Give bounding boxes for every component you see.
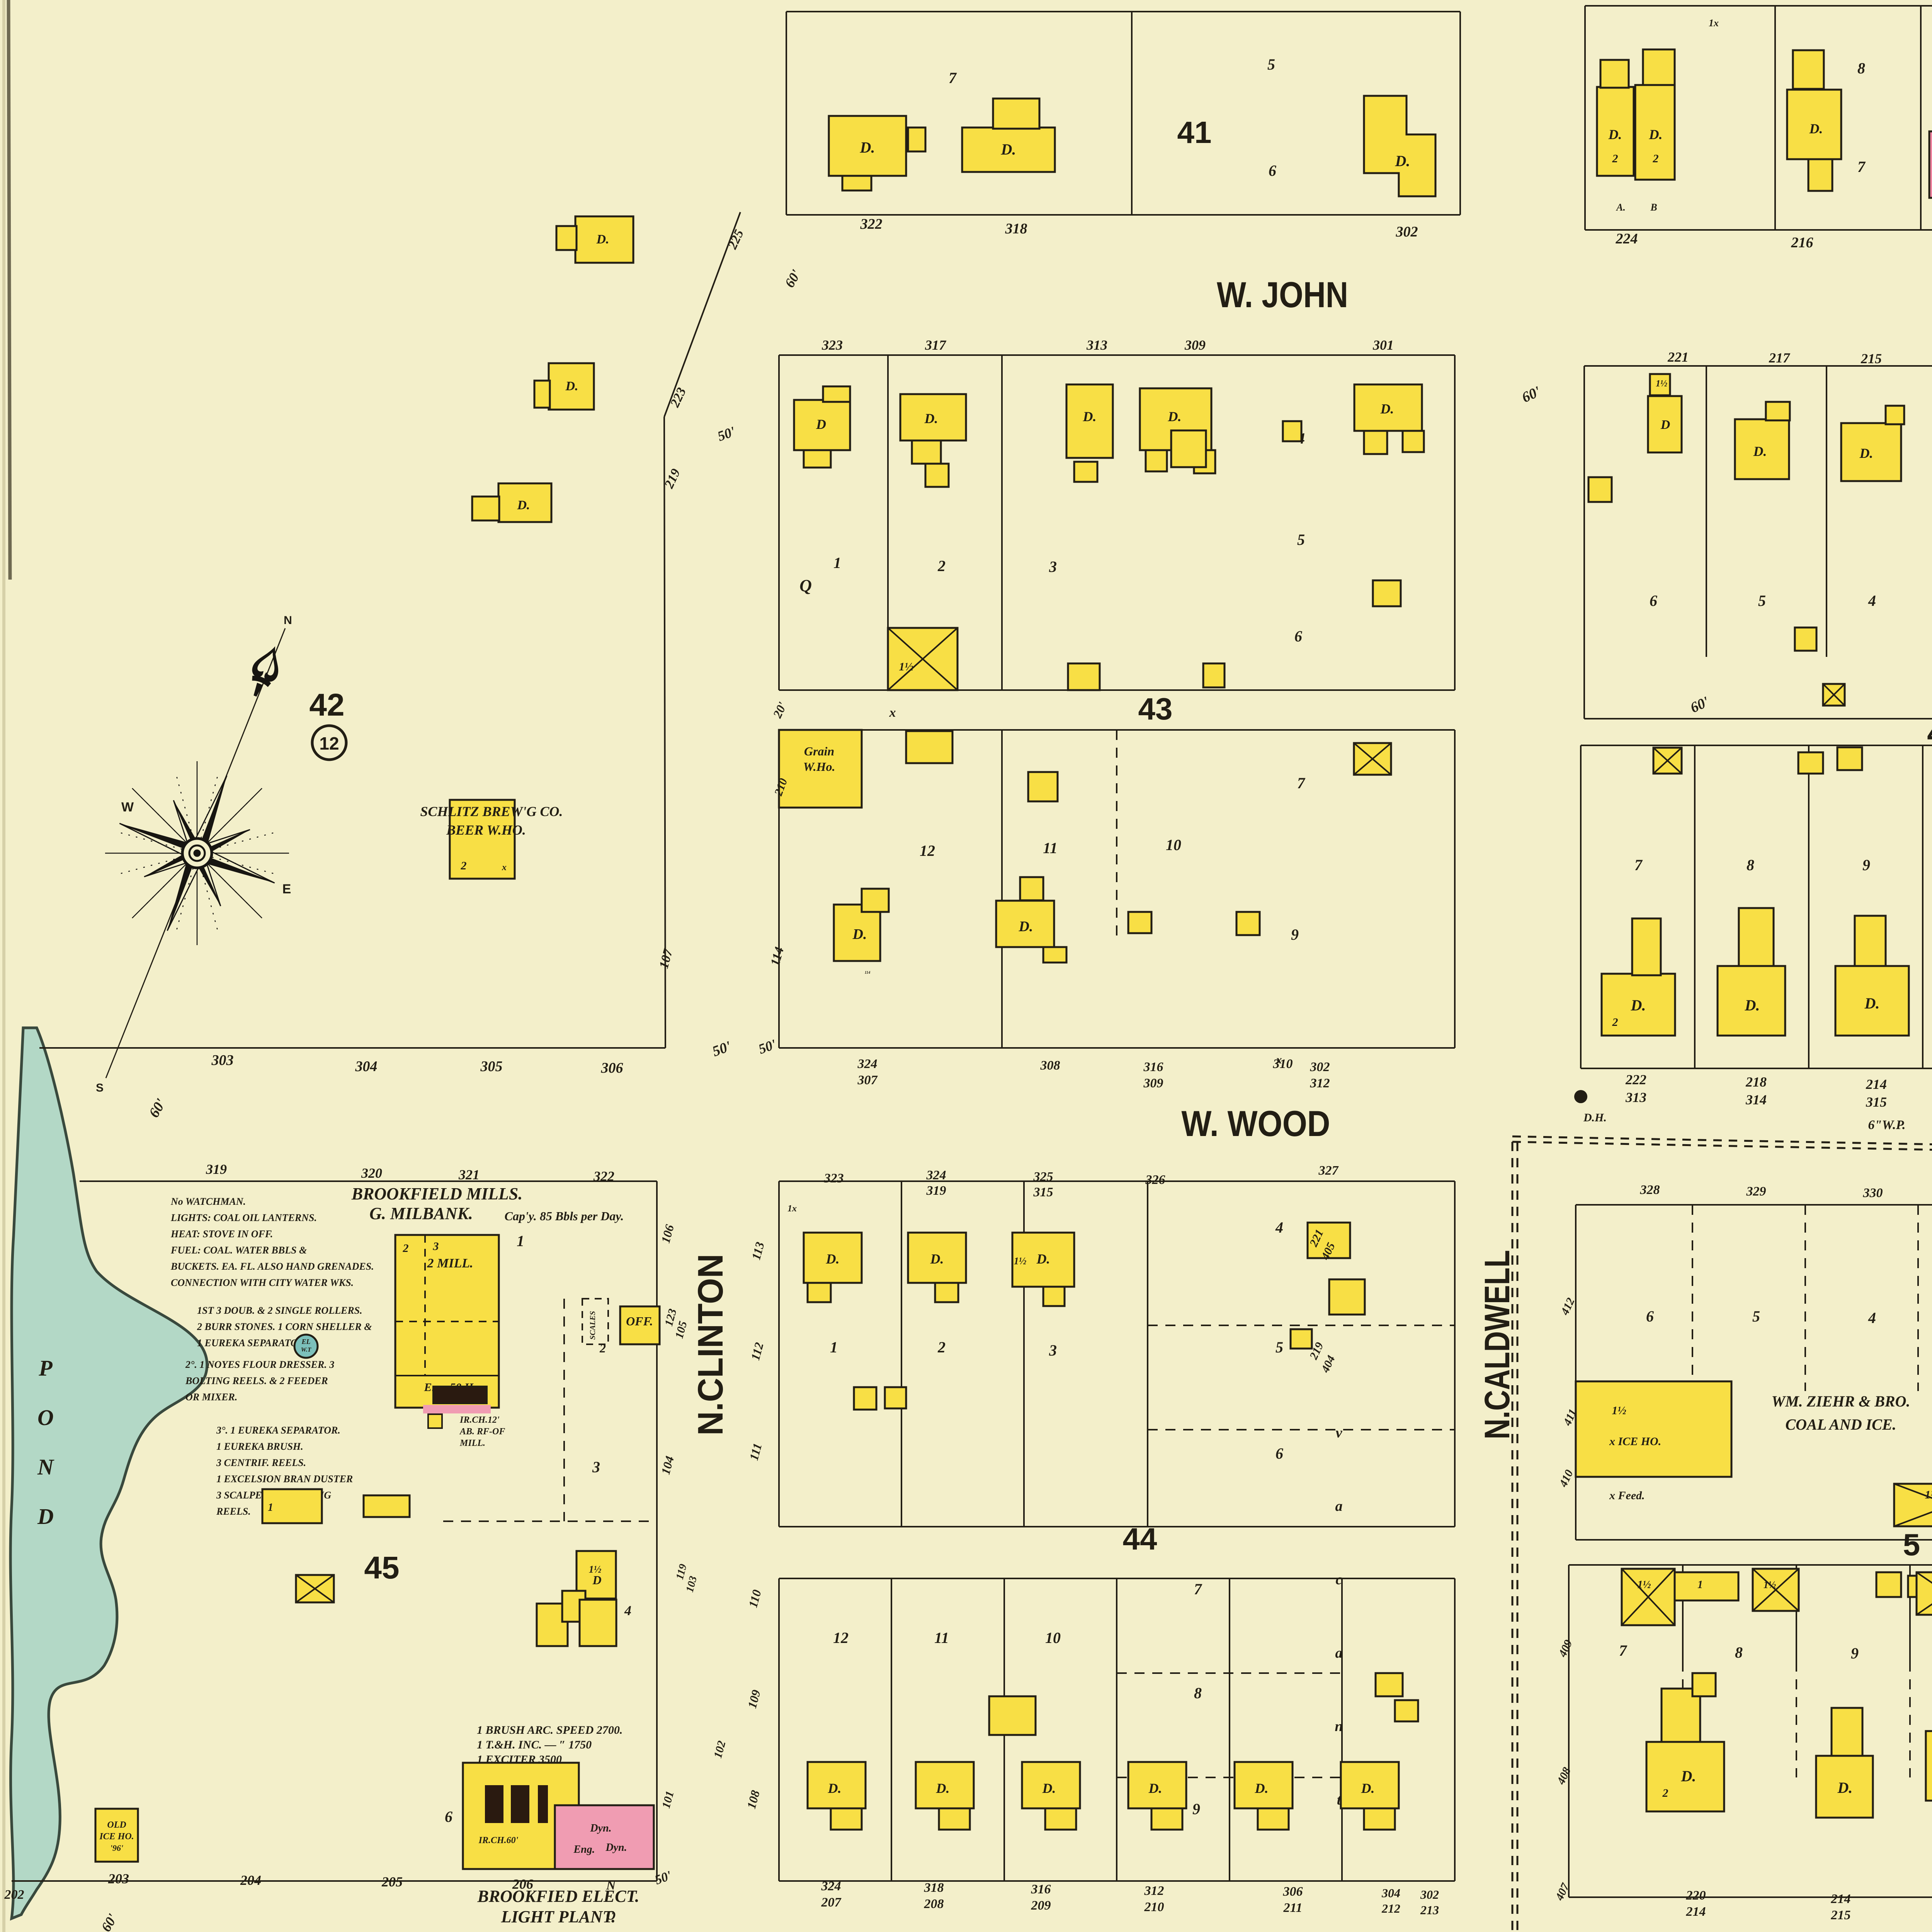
svg-text:a: a <box>1335 1645 1343 1661</box>
svg-text:1½: 1½ <box>1638 1579 1651 1591</box>
svg-text:E: E <box>282 882 291 896</box>
svg-text:5: 5 <box>1276 1338 1283 1356</box>
svg-text:N: N <box>37 1454 54 1480</box>
svg-text:D.: D. <box>930 1251 944 1267</box>
svg-text:7: 7 <box>949 69 957 87</box>
svg-text:D.: D. <box>860 139 875 156</box>
svg-text:7: 7 <box>1194 1580 1202 1598</box>
svg-text:207: 207 <box>821 1895 842 1910</box>
svg-text:1: 1 <box>268 1502 273 1514</box>
svg-text:6: 6 <box>445 1808 452 1825</box>
svg-text:6: 6 <box>1276 1445 1283 1462</box>
svg-text:A.: A. <box>1616 202 1626 213</box>
svg-text:SCALES: SCALES <box>588 1311 597 1340</box>
svg-text:205: 205 <box>381 1874 403 1889</box>
svg-text:6: 6 <box>1294 628 1302 645</box>
svg-text:N: N <box>606 1878 616 1893</box>
svg-text:v: v <box>1336 1425 1343 1441</box>
svg-text:D.: D. <box>1380 401 1394 417</box>
svg-text:No WATCHMAN.: No WATCHMAN. <box>170 1196 246 1207</box>
svg-text:COAL AND ICE.: COAL AND ICE. <box>1785 1416 1896 1433</box>
svg-text:x Feed.: x Feed. <box>1609 1489 1645 1502</box>
svg-text:MILL.: MILL. <box>459 1438 485 1448</box>
svg-text:1 EUREKA SEPARATOR.: 1 EUREKA SEPARATOR. <box>197 1337 307 1349</box>
svg-text:313: 313 <box>1625 1090 1646 1105</box>
svg-text:2: 2 <box>461 859 467 872</box>
svg-text:W. WOOD: W. WOOD <box>1182 1103 1330 1144</box>
svg-text:3: 3 <box>1049 1342 1057 1359</box>
svg-text:2: 2 <box>403 1242 409 1255</box>
svg-text:4: 4 <box>624 1603 631 1618</box>
svg-text:6: 6 <box>1646 1308 1654 1325</box>
svg-text:211: 211 <box>1283 1901 1302 1915</box>
svg-text:322: 322 <box>593 1168 614 1184</box>
svg-text:42: 42 <box>309 687 344 723</box>
svg-text:LIGHT PLANT.: LIGHT PLANT. <box>501 1907 616 1926</box>
svg-text:12: 12 <box>920 842 935 859</box>
svg-text:325: 325 <box>1033 1170 1053 1184</box>
svg-text:B: B <box>1650 202 1657 213</box>
svg-text:8: 8 <box>1857 60 1865 77</box>
svg-text:221: 221 <box>1667 349 1689 365</box>
svg-text:IR.CH.12': IR.CH.12' <box>459 1415 500 1425</box>
svg-text:9: 9 <box>1851 1645 1859 1662</box>
svg-text:218: 218 <box>1745 1074 1767 1090</box>
svg-text:OFF.: OFF. <box>626 1314 653 1328</box>
svg-text:D.: D. <box>1681 1767 1696 1785</box>
svg-text:BUCKETS. EA. FL. ALSO HAND GRE: BUCKETS. EA. FL. ALSO HAND GRENADES. <box>170 1261 374 1272</box>
svg-text:214: 214 <box>1686 1905 1706 1919</box>
svg-text:2: 2 <box>1612 1016 1618 1029</box>
svg-text:D.: D. <box>1649 127 1663 142</box>
svg-text:316: 316 <box>1031 1882 1051 1896</box>
svg-text:319: 319 <box>206 1162 227 1177</box>
svg-text:3: 3 <box>433 1240 439 1253</box>
svg-text:313: 313 <box>1086 337 1107 353</box>
svg-text:10: 10 <box>1045 1629 1061 1646</box>
svg-text:214: 214 <box>1866 1077 1887 1092</box>
svg-text:LIGHTS: COAL OIL LANTERNS.: LIGHTS: COAL OIL LANTERNS. <box>170 1212 317 1223</box>
svg-text:308: 308 <box>1040 1058 1060 1073</box>
svg-text:302: 302 <box>1396 224 1418 240</box>
svg-text:5: 5 <box>1297 531 1305 548</box>
svg-text:D: D <box>592 1573 601 1587</box>
svg-text:1½: 1½ <box>1764 1579 1776 1590</box>
svg-text:D.: D. <box>1631 997 1646 1014</box>
svg-text:306: 306 <box>601 1060 623 1076</box>
svg-text:IR.CH.60': IR.CH.60' <box>478 1835 519 1845</box>
svg-text:302: 302 <box>1420 1888 1439 1901</box>
svg-text:D.: D. <box>828 1781 842 1796</box>
svg-text:1½: 1½ <box>1612 1404 1626 1417</box>
svg-text:c: c <box>1336 1571 1342 1588</box>
svg-text:D: D <box>37 1504 54 1529</box>
svg-text:D.H.: D.H. <box>1583 1111 1607 1124</box>
svg-text:1½: 1½ <box>1656 379 1667 389</box>
svg-text:324: 324 <box>857 1057 878 1071</box>
svg-text:Q: Q <box>799 576 812 595</box>
svg-text:S: S <box>96 1082 104 1094</box>
svg-text:D.: D. <box>1148 1781 1162 1796</box>
svg-text:203: 203 <box>108 1871 129 1886</box>
svg-text:D.: D. <box>1361 1781 1375 1796</box>
svg-text:317: 317 <box>925 337 947 353</box>
svg-text:D.: D. <box>517 498 530 512</box>
svg-text:D.: D. <box>924 411 938 426</box>
svg-text:215: 215 <box>1831 1908 1851 1922</box>
svg-text:3°. 1 EUREKA SEPARATOR.: 3°. 1 EUREKA SEPARATOR. <box>216 1425 340 1436</box>
svg-text:t: t <box>1337 1792 1342 1808</box>
svg-text:9: 9 <box>1291 926 1299 943</box>
svg-text:D: D <box>1660 418 1670 432</box>
svg-text:G. MILBANK.: G. MILBANK. <box>369 1204 473 1223</box>
svg-text:302: 302 <box>1310 1060 1330 1074</box>
svg-text:7: 7 <box>1634 856 1643 874</box>
svg-text:SCHLITZ BREW'G CO.: SCHLITZ BREW'G CO. <box>420 804 563 819</box>
svg-text:307: 307 <box>857 1073 878 1087</box>
svg-text:324: 324 <box>926 1168 946 1182</box>
svg-text:D.: D. <box>1859 446 1873 461</box>
svg-text:3: 3 <box>1049 558 1057 575</box>
svg-text:321: 321 <box>458 1167 480 1182</box>
svg-text:304: 304 <box>1381 1886 1400 1900</box>
svg-text:D.: D. <box>1753 444 1767 459</box>
svg-text:328: 328 <box>1640 1183 1660 1197</box>
svg-text:305: 305 <box>480 1058 503 1075</box>
svg-text:WM. ZIEHR & BRO.: WM. ZIEHR & BRO. <box>1772 1393 1910 1410</box>
svg-text:D.: D. <box>1837 1779 1853 1796</box>
svg-text:114: 114 <box>865 971 870 975</box>
svg-text:312: 312 <box>1310 1076 1330 1090</box>
svg-text:D: D <box>816 417 826 432</box>
svg-text:D.: D. <box>565 379 578 393</box>
svg-text:x: x <box>889 706 896 720</box>
svg-text:330: 330 <box>1863 1186 1883 1200</box>
svg-text:2°. 1 NOYES FLOUR DRESSER. 3: 2°. 1 NOYES FLOUR DRESSER. 3 <box>185 1359 334 1370</box>
svg-text:D.: D. <box>1255 1781 1269 1796</box>
svg-text:41: 41 <box>1177 115 1212 150</box>
svg-text:1 BRUSH ARC. SPEED 2700.: 1 BRUSH ARC. SPEED 2700. <box>477 1724 622 1736</box>
svg-text:214: 214 <box>1831 1892 1851 1906</box>
svg-text:5: 5 <box>1267 56 1275 73</box>
svg-text:1: 1 <box>1697 1579 1703 1591</box>
svg-text:8: 8 <box>1747 856 1754 874</box>
svg-text:7: 7 <box>1297 774 1306 792</box>
svg-text:322: 322 <box>860 216 883 232</box>
svg-text:329: 329 <box>1746 1184 1766 1199</box>
svg-text:327: 327 <box>1318 1163 1339 1178</box>
svg-text:2 BURR STONES. 1 CORN SHELLER: 2 BURR STONES. 1 CORN SHELLER & <box>197 1321 372 1332</box>
svg-text:212: 212 <box>1381 1901 1400 1915</box>
svg-text:206: 206 <box>512 1876 533 1892</box>
svg-text:309: 309 <box>1184 337 1206 353</box>
svg-text:314: 314 <box>1745 1092 1767 1107</box>
svg-text:6: 6 <box>1650 592 1657 609</box>
svg-text:5: 5 <box>1758 592 1766 609</box>
svg-text:323: 323 <box>824 1171 844 1185</box>
svg-text:W.Ho.: W.Ho. <box>803 760 835 774</box>
svg-text:215: 215 <box>1861 351 1882 366</box>
svg-text:224: 224 <box>1616 231 1638 247</box>
svg-text:1x: 1x <box>1709 17 1719 29</box>
svg-text:D.: D. <box>1745 997 1760 1014</box>
svg-text:312: 312 <box>1144 1884 1164 1898</box>
svg-text:ICE HO.: ICE HO. <box>99 1832 134 1842</box>
svg-text:1½: 1½ <box>1014 1255 1027 1267</box>
svg-text:304: 304 <box>355 1058 378 1075</box>
svg-text:4: 4 <box>1868 1309 1876 1327</box>
svg-text:D.: D. <box>596 232 609 247</box>
svg-text:318: 318 <box>924 1881 944 1895</box>
svg-text:5: 5 <box>1752 1308 1760 1325</box>
svg-text:303: 303 <box>211 1052 234 1068</box>
svg-text:Grain: Grain <box>804 744 834 758</box>
svg-text:9: 9 <box>1862 856 1870 874</box>
svg-text:n: n <box>1335 1718 1343 1735</box>
svg-text:324: 324 <box>821 1879 841 1893</box>
svg-text:W.T: W.T <box>301 1347 312 1353</box>
svg-text:2: 2 <box>1653 152 1659 165</box>
svg-text:BOLTING REELS. & 2 FEEDER: BOLTING REELS. & 2 FEEDER <box>185 1375 328 1386</box>
svg-text:2: 2 <box>599 1341 606 1355</box>
svg-text:202: 202 <box>4 1888 24 1902</box>
svg-text:REELS.: REELS. <box>216 1506 251 1517</box>
svg-text:8: 8 <box>1735 1644 1743 1661</box>
svg-text:12: 12 <box>833 1629 849 1646</box>
svg-text:N.CLINTON: N.CLINTON <box>691 1254 730 1435</box>
svg-text:301: 301 <box>1372 337 1394 353</box>
svg-text:318: 318 <box>1005 221 1027 237</box>
svg-text:Eng.: Eng. <box>573 1844 595 1855</box>
svg-text:2: 2 <box>937 1338 946 1356</box>
svg-text:315: 315 <box>1033 1185 1053 1199</box>
svg-text:W. BROOK: W. BROOK <box>1151 1928 1317 1932</box>
svg-text:FUEL: COAL. WATER BBLS &: FUEL: COAL. WATER BBLS & <box>170 1245 307 1256</box>
svg-text:1½: 1½ <box>899 660 913 673</box>
svg-text:2: 2 <box>937 557 946 575</box>
svg-text:1 EXCITER 3500: 1 EXCITER 3500 <box>477 1753 562 1766</box>
svg-text:2: 2 <box>1662 1787 1668 1799</box>
svg-text:N: N <box>284 614 292 627</box>
svg-text:8: 8 <box>1194 1684 1202 1702</box>
svg-text:309: 309 <box>1143 1076 1163 1090</box>
svg-text:213: 213 <box>1420 1903 1439 1917</box>
svg-text:204: 204 <box>240 1872 261 1888</box>
svg-text:12: 12 <box>319 733 339 753</box>
svg-text:310: 310 <box>1273 1057 1293 1071</box>
svg-text:D.: D. <box>1001 141 1016 158</box>
svg-text:9: 9 <box>1192 1800 1200 1818</box>
svg-text:1ST 3 DOUB. & 2 SINGLE ROLLERS: 1ST 3 DOUB. & 2 SINGLE ROLLERS. <box>197 1305 362 1316</box>
svg-text:Dyn.: Dyn. <box>590 1822 611 1834</box>
svg-text:x ICE HO.: x ICE HO. <box>1609 1435 1661 1448</box>
svg-text:43: 43 <box>1138 692 1173 726</box>
svg-text:x: x <box>1276 1053 1282 1066</box>
svg-text:6"W.P.: 6"W.P. <box>1868 1118 1906 1132</box>
svg-text:220: 220 <box>1686 1888 1706 1903</box>
svg-text:BEER W.HO.: BEER W.HO. <box>446 822 526 838</box>
svg-text:D.: D. <box>826 1251 840 1267</box>
svg-text:D.: D. <box>936 1781 950 1796</box>
svg-text:Dyn.: Dyn. <box>605 1842 627 1854</box>
svg-text:11: 11 <box>1043 839 1058 857</box>
svg-text:1 EXCELSION BRAN DUSTER: 1 EXCELSION BRAN DUSTER <box>216 1473 353 1485</box>
svg-text:AB. RF-OF: AB. RF-OF <box>459 1427 505 1437</box>
svg-text:D.: D. <box>1168 409 1182 424</box>
svg-text:217: 217 <box>1769 350 1791 366</box>
svg-text:4: 4 <box>1868 592 1876 609</box>
svg-text:1: 1 <box>833 554 841 571</box>
svg-text:7: 7 <box>1857 158 1866 175</box>
svg-text:D.: D. <box>1809 121 1823 136</box>
svg-text:BROOKFIELD MILLS.: BROOKFIELD MILLS. <box>351 1184 523 1203</box>
svg-text:44: 44 <box>1123 1522 1157 1556</box>
svg-text:319: 319 <box>926 1184 946 1198</box>
svg-text:O: O <box>606 1908 616 1923</box>
svg-text:D.: D. <box>1019 918 1033 935</box>
svg-text:3: 3 <box>592 1458 600 1476</box>
svg-text:209: 209 <box>1031 1898 1051 1913</box>
svg-text:a: a <box>1335 1498 1343 1514</box>
svg-text:210: 210 <box>1144 1900 1164 1914</box>
svg-text:'96': '96' <box>110 1843 123 1853</box>
svg-text:Cap'y. 85 Bbls per Day.: Cap'y. 85 Bbls per Day. <box>505 1209 624 1223</box>
svg-text:10: 10 <box>1166 836 1181 854</box>
svg-text:7: 7 <box>1619 1642 1628 1659</box>
svg-text:1: 1 <box>830 1338 838 1356</box>
svg-text:D.: D. <box>1864 995 1880 1012</box>
svg-text:OLD: OLD <box>107 1820 126 1830</box>
svg-text:D.: D. <box>1608 127 1622 142</box>
svg-text:1x: 1x <box>787 1204 797 1214</box>
svg-text:O: O <box>37 1405 54 1430</box>
svg-text:W: W <box>121 800 134 815</box>
svg-text:323: 323 <box>821 337 843 353</box>
svg-text:1½: 1½ <box>1925 1488 1932 1501</box>
svg-text:EL: EL <box>301 1338 310 1345</box>
svg-text:3 CENTRIF. REELS.: 3 CENTRIF. REELS. <box>216 1457 306 1468</box>
svg-text:316: 316 <box>1143 1060 1163 1074</box>
svg-text:222: 222 <box>1625 1072 1646 1087</box>
svg-text:D.: D. <box>1395 152 1410 170</box>
svg-text:N.CALDWELL: N.CALDWELL <box>1478 1250 1517 1439</box>
svg-text:326: 326 <box>1145 1173 1165 1187</box>
svg-text:315: 315 <box>1866 1094 1887 1110</box>
svg-text:2 MILL.: 2 MILL. <box>427 1256 473 1270</box>
svg-text:2: 2 <box>1612 152 1618 165</box>
svg-text:D.: D. <box>1036 1251 1050 1267</box>
svg-text:D.: D. <box>852 926 867 942</box>
svg-text:6: 6 <box>1269 162 1276 179</box>
svg-text:CONNECTION WITH CITY WATER WKS: CONNECTION WITH CITY WATER WKS. <box>171 1277 354 1288</box>
svg-text:320: 320 <box>361 1165 382 1181</box>
svg-text:HEAT: STOVE IN OFF.: HEAT: STOVE IN OFF. <box>170 1228 273 1240</box>
svg-text:45: 45 <box>364 1550 399 1585</box>
svg-text:D.: D. <box>1083 409 1097 424</box>
svg-text:11: 11 <box>934 1629 949 1646</box>
svg-text:D.: D. <box>1042 1781 1056 1796</box>
svg-text:OR MIXER.: OR MIXER. <box>185 1391 237 1403</box>
svg-text:216: 216 <box>1791 235 1813 251</box>
svg-text:208: 208 <box>924 1897 944 1911</box>
svg-text:1 EUREKA BRUSH.: 1 EUREKA BRUSH. <box>216 1441 303 1452</box>
svg-text:1 T.&H. INC. — ″ 1750: 1 T.&H. INC. — ″ 1750 <box>477 1738 592 1751</box>
svg-text:P: P <box>38 1355 53 1381</box>
svg-text:W. JOHN: W. JOHN <box>1217 274 1348 315</box>
svg-text:x: x <box>502 862 507 872</box>
svg-text:306: 306 <box>1283 1884 1303 1899</box>
svg-text:5: 5 <box>1903 1527 1920 1562</box>
svg-text:4: 4 <box>1275 1219 1283 1236</box>
svg-text:1: 1 <box>517 1232 524 1250</box>
